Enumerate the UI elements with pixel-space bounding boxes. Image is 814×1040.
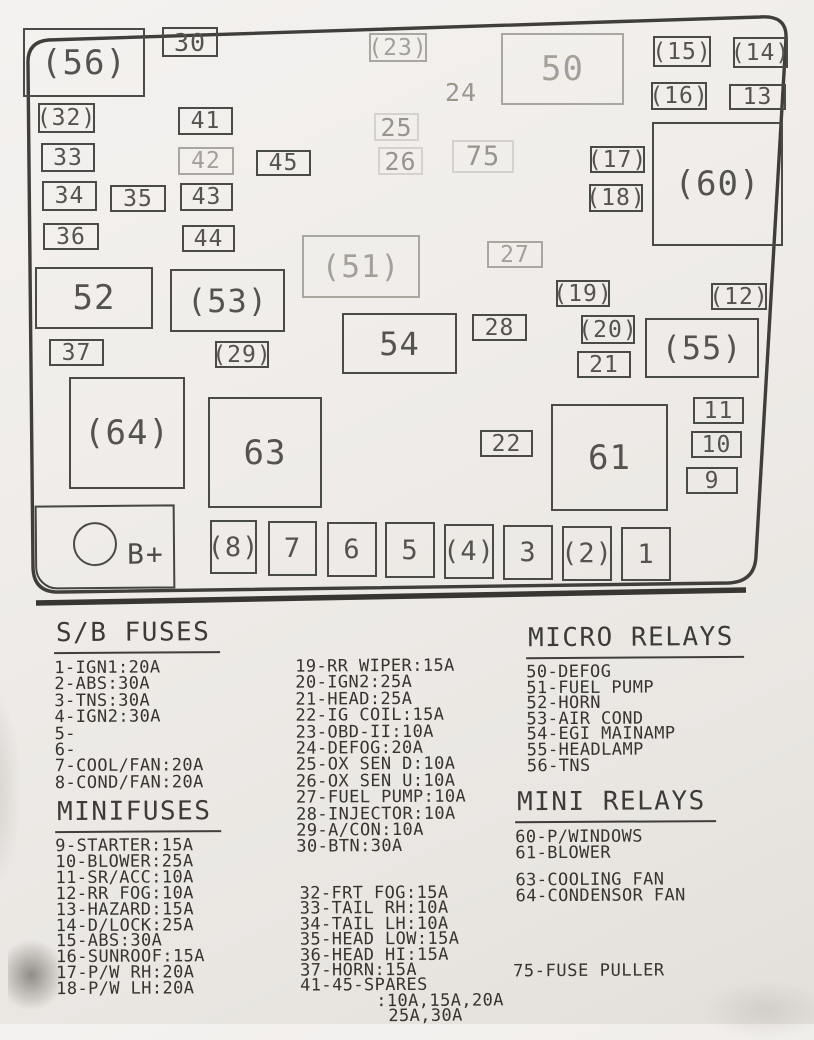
mini-relay-item: 61-BLOWER	[515, 844, 716, 861]
micro-relays-title: MICRO RELAYS	[526, 622, 744, 659]
mini-relays-title: MINI RELAYS	[515, 786, 716, 823]
fan-relay-item: 64-CONDENSOR FAN	[516, 887, 686, 904]
minifuses-section: MINIFUSES 9-STARTER:15A10-BLOWER:25A11-S…	[55, 796, 223, 998]
sb-fuse-item: 4-IGN2:30A	[54, 708, 220, 725]
mini-relays-section: MINI RELAYS 60-P/WINDOWS61-BLOWER	[515, 786, 716, 862]
fuse-item: 25A,30A	[300, 1009, 504, 1026]
micro-relays-section: MICRO RELAYS 50-DEFOG51-FUEL PUMP52-HORN…	[526, 622, 745, 774]
fuse-puller-note: 75-FUSE PULLER	[513, 960, 665, 981]
legend: S/B FUSES 1-IGN1:20A2-ABS:30A3-TNS:30A4-…	[0, 0, 814, 1026]
mini-relays-list: 60-P/WINDOWS61-BLOWER	[515, 828, 716, 862]
scanned-fuse-box-page: (56)30(23)2450(15)(14)(16)13(32)41253342…	[0, 0, 814, 1024]
sb-fuse-item: 8-COND/FAN:20A	[55, 774, 221, 791]
fuses-32-45-list: 32-FRT FOG:15A33-TAIL RH:10A34-TAIL LH:1…	[300, 885, 504, 1025]
micro-relay-item: 56-TNS	[527, 757, 745, 774]
fuses-19-30-list: 19-RR WIPER:15A20-IGN2:25A21-HEAD:25A22-…	[295, 658, 466, 856]
minifuse-item: 18-P/W LH:20A	[56, 981, 222, 998]
sb-fuse-item: 5-	[55, 725, 221, 742]
minifuses-title: MINIFUSES	[55, 796, 222, 833]
sb-fuses-section: S/B FUSES 1-IGN1:20A2-ABS:30A3-TNS:30A4-…	[54, 617, 221, 791]
fuse-item: 30-BTN:30A	[296, 838, 466, 855]
minifuses-list: 9-STARTER:15A10-BLOWER:25A11-SR/ACC:10A1…	[55, 838, 222, 998]
sb-fuses-list: 1-IGN1:20A2-ABS:30A3-TNS:30A4-IGN2:30A5-…	[54, 659, 221, 791]
sb-fuses-title: S/B FUSES	[54, 617, 221, 654]
micro-relays-list: 50-DEFOG51-FUEL PUMP52-HORN53-AIR COND54…	[526, 664, 745, 774]
fan-relays-list: 63-COOLING FAN64-CONDENSOR FAN	[515, 871, 685, 904]
